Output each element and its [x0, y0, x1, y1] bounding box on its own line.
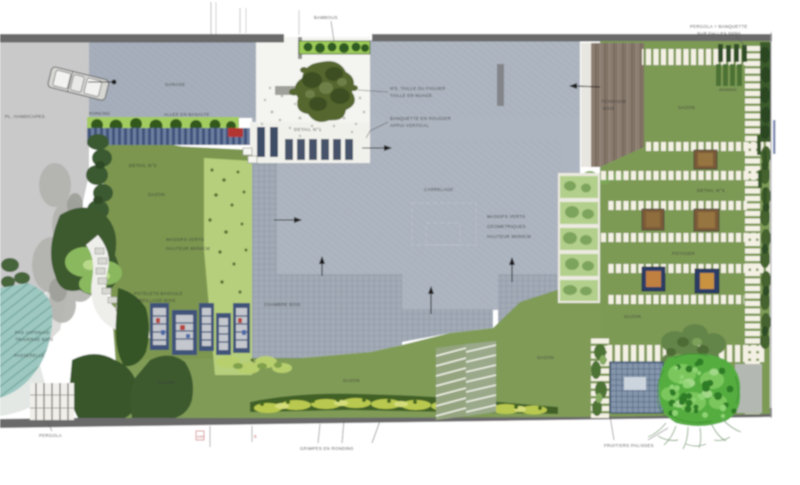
- svg-text:PARKING: PARKING: [89, 111, 111, 116]
- svg-text:TERRASSE: TERRASSE: [601, 99, 627, 104]
- svg-text:GEOMETRIQUES: GEOMETRIQUES: [487, 224, 526, 229]
- svg-text:DETAIL N°2: DETAIL N°2: [129, 163, 157, 168]
- svg-text:IFS, TAILLE DU FIGUIER: IFS, TAILLE DU FIGUIER: [390, 86, 446, 91]
- svg-text:TREILLAGE BOIS: TREILLAGE BOIS: [136, 298, 175, 303]
- svg-text:HAUTEUR 80/60CM: HAUTEUR 80/60CM: [166, 246, 210, 251]
- svg-text:SUR DALLES 50/50: SUR DALLES 50/50: [697, 31, 741, 36]
- svg-text:TRAVERSE BOIS: TRAVERSE BOIS: [15, 337, 53, 342]
- svg-text:GAZON: GAZON: [343, 378, 360, 383]
- svg-text:CARRELAGE: CARRELAGE: [424, 187, 453, 192]
- svg-text:PERGOLA: PERGOLA: [39, 433, 62, 438]
- svg-text:BANQUETTE EN ROUGIER: BANQUETTE EN ROUGIER: [390, 116, 451, 121]
- svg-text:BOIS: BOIS: [603, 106, 615, 111]
- svg-text:PASSERELLE: PASSERELLE: [14, 353, 45, 358]
- svg-text:MASSIFS VERTS: MASSIFS VERTS: [166, 237, 204, 242]
- svg-text:CHAMBRE BOIS: CHAMBRE BOIS: [264, 302, 301, 307]
- svg-text:GAZON: GAZON: [158, 380, 175, 385]
- svg-text:GRIMPES EN RONDINS: GRIMPES EN RONDINS: [300, 446, 354, 451]
- svg-text:MASSIFS VERTS: MASSIFS VERTS: [487, 214, 525, 219]
- svg-text:ALLEE EN BASALTE: ALLEE EN BASALTE: [164, 112, 210, 117]
- svg-text:GAZON: GAZON: [678, 105, 695, 110]
- svg-text:POTELETS BASCULE: POTELETS BASCULE: [134, 291, 183, 296]
- svg-text:APPUI VERTICAL: APPUI VERTICAL: [390, 123, 430, 128]
- svg-text:GAZON: GAZON: [148, 192, 165, 197]
- svg-text:BAMBOUS: BAMBOUS: [314, 15, 338, 20]
- svg-text:DETAIL N°3: DETAIL N°3: [697, 188, 725, 193]
- svg-text:DETAIL N°1: DETAIL N°1: [294, 127, 322, 132]
- svg-text:TAILLE EN NUAGE: TAILLE EN NUAGE: [390, 93, 432, 98]
- svg-text:GAZON: GAZON: [624, 314, 641, 319]
- svg-text:HAUTEUR 80/60CM: HAUTEUR 80/60CM: [487, 234, 531, 239]
- svg-text:FRUITIERS PALISSES: FRUITIERS PALISSES: [604, 443, 654, 448]
- svg-text:PERGOLA + BANQUETTE: PERGOLA + BANQUETTE: [690, 24, 748, 29]
- svg-text:PL. HANDICAPES: PL. HANDICAPES: [5, 114, 45, 119]
- svg-text:POTAGER: POTAGER: [672, 251, 695, 256]
- svg-text:GARAGE: GARAGE: [165, 82, 185, 87]
- svg-text:150: 150: [197, 434, 204, 439]
- svg-text:GAZON: GAZON: [537, 355, 554, 360]
- svg-text:AROMATES: AROMATES: [719, 88, 737, 92]
- svg-text:PAS JAPONAIS: PAS JAPONAIS: [15, 330, 49, 335]
